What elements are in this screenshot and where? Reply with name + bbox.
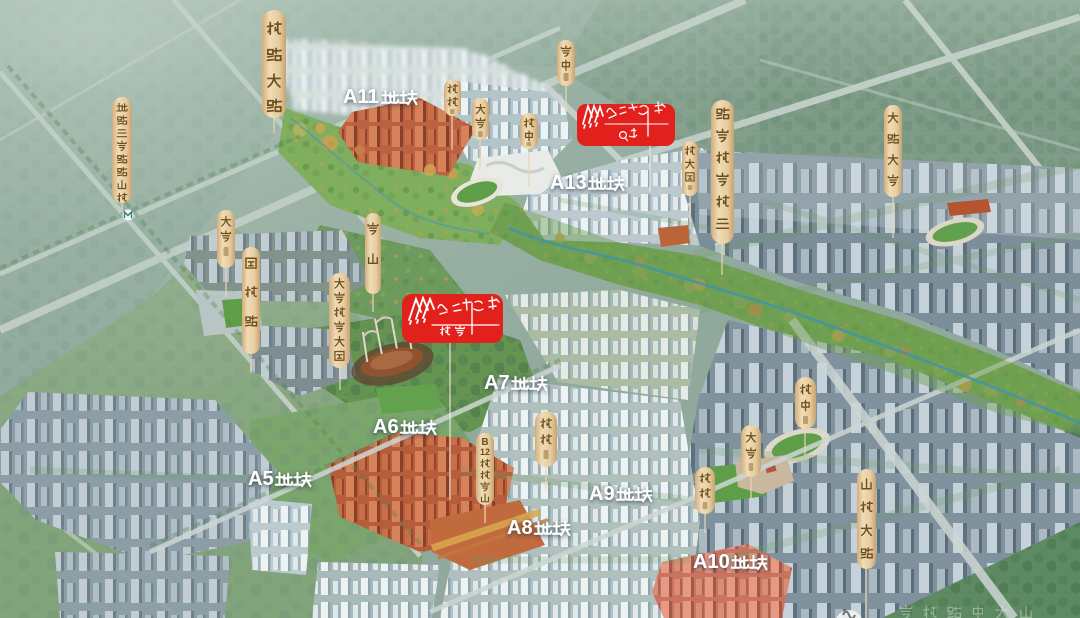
svg-text:A6: A6 (373, 416, 399, 438)
svg-text:A10: A10 (693, 551, 730, 573)
svg-text:A7: A7 (484, 372, 510, 394)
svg-text:12: 12 (480, 447, 490, 457)
svg-text:A13: A13 (550, 172, 587, 194)
svg-text:A9: A9 (589, 483, 615, 505)
svg-text:A5: A5 (248, 468, 274, 490)
svg-text:A11: A11 (343, 86, 379, 108)
svg-text:A8: A8 (507, 517, 533, 539)
